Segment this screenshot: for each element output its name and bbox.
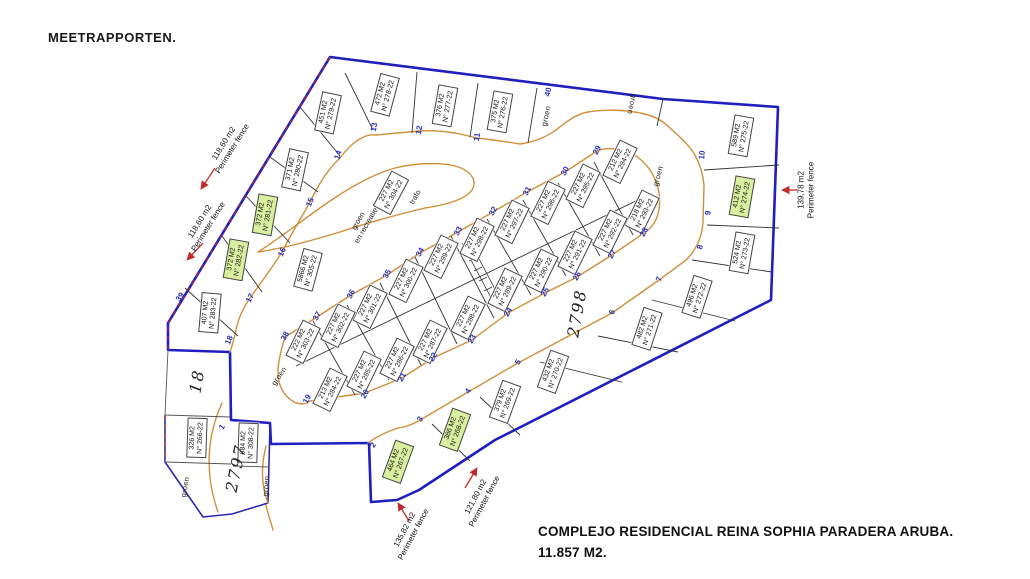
street-number: 13: [369, 122, 379, 132]
street-number: 10: [697, 150, 707, 160]
title-block-line1: COMPLEJO RESIDENCIAL REINA SOPHIA PARADE…: [538, 522, 953, 543]
map-canvas: MEETRAPPORTEN. 451 M2N° 279-22472 M2N° 2…: [0, 0, 1030, 579]
lot-label: 326 M2N° 266-22: [186, 418, 207, 458]
street-number: 40: [543, 87, 554, 98]
inner-block-lines: [296, 162, 646, 395]
parcel-lines: [165, 72, 779, 467]
page-title: MEETRAPPORTEN.: [48, 30, 176, 45]
title-block: COMPLEJO RESIDENCIAL REINA SOPHIA PARADE…: [538, 522, 953, 564]
street-number: 12: [414, 125, 424, 135]
perimeter-fence-label: 139,78 m2Perimeter fence: [796, 162, 815, 218]
green-area-label: groen: [261, 475, 272, 496]
lot-label: 407 M2N° 283-22: [198, 292, 221, 333]
title-block-line2: 11.857 M2.: [538, 543, 953, 564]
fence-arrows: [187, 168, 797, 521]
street-number: 9: [703, 210, 712, 215]
street-number: 11: [472, 132, 482, 142]
